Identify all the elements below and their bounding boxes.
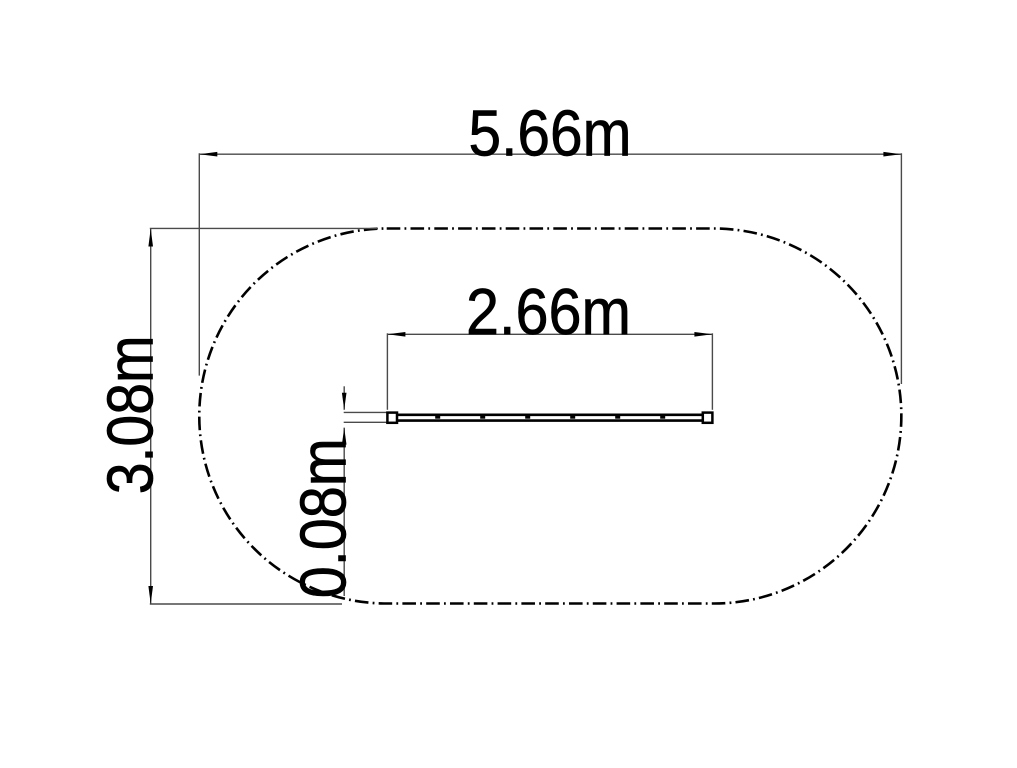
svg-text:2.66m: 2.66m <box>466 276 631 348</box>
svg-text:3.08m: 3.08m <box>95 335 167 494</box>
svg-text:0.08m: 0.08m <box>287 438 359 598</box>
svg-text:5.66m: 5.66m <box>469 97 632 169</box>
